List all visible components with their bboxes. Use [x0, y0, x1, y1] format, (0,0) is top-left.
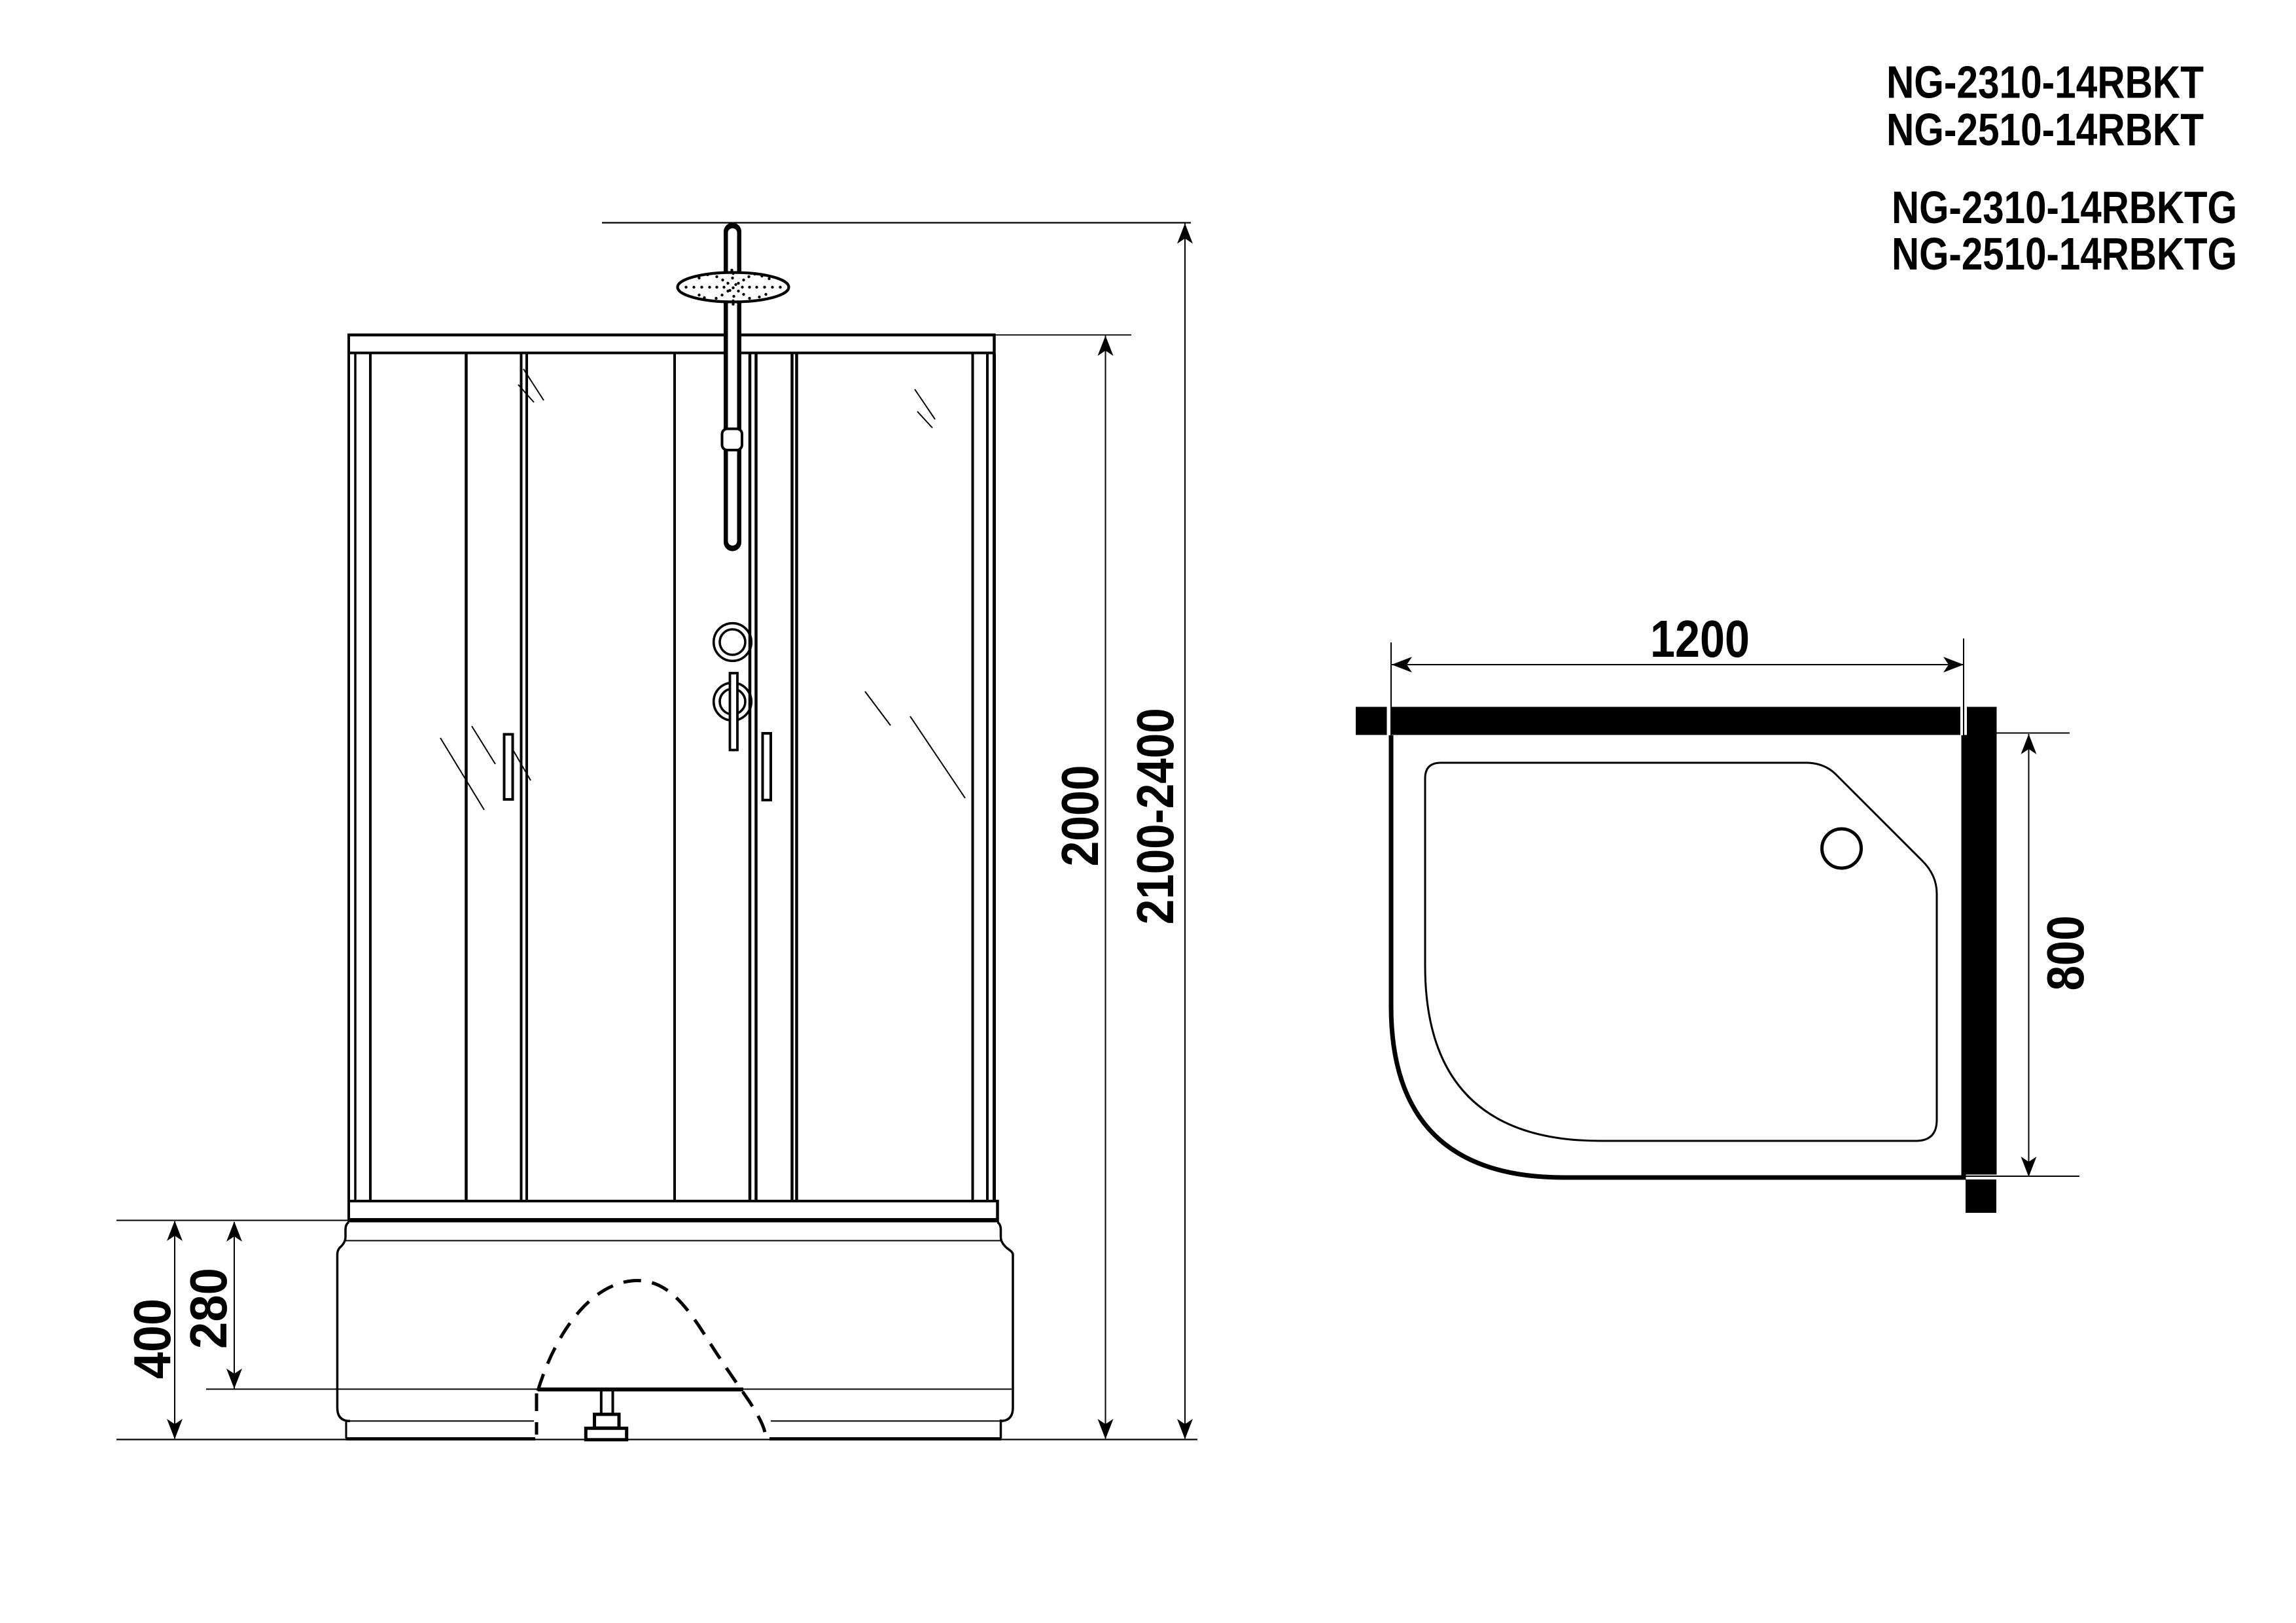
svg-text:800: 800: [2036, 915, 2094, 990]
svg-text:280: 280: [179, 1268, 238, 1349]
svg-text:NG-2510-14RBKT: NG-2510-14RBKT: [1886, 104, 2204, 155]
svg-text:NG-2510-14RBKTG: NG-2510-14RBKTG: [1892, 228, 2237, 279]
svg-text:NG-2310-14RBKTG: NG-2310-14RBKTG: [1892, 182, 2237, 233]
svg-text:2000: 2000: [1051, 765, 1109, 867]
svg-text:1200: 1200: [1650, 610, 1750, 668]
svg-text:400: 400: [123, 1299, 181, 1379]
svg-text:2100-2400: 2100-2400: [1126, 708, 1184, 924]
svg-text:NG-2310-14RBKT: NG-2310-14RBKT: [1886, 57, 2204, 108]
